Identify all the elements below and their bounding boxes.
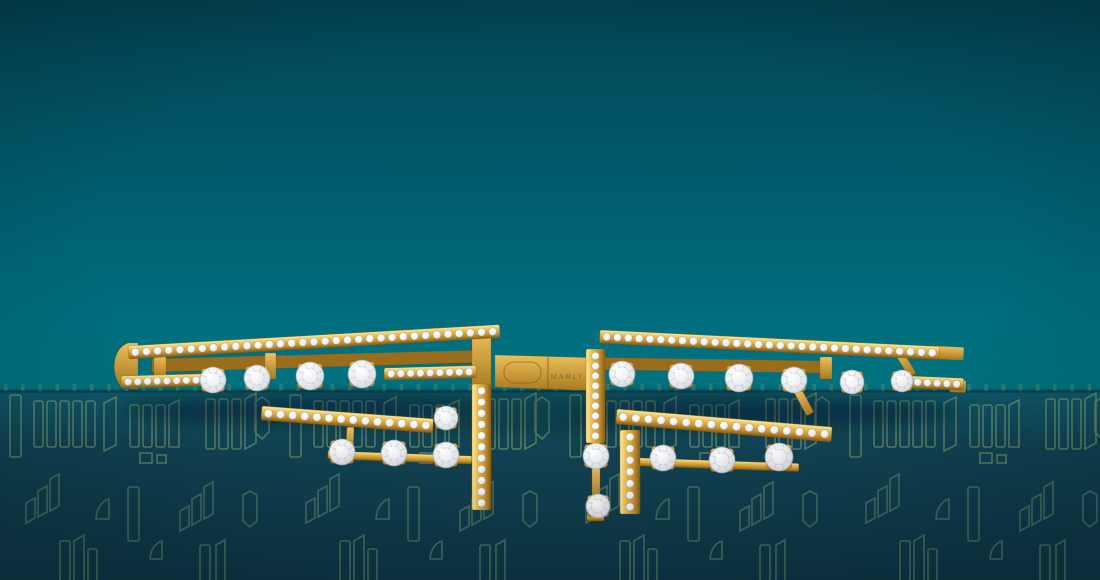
pave-bar — [620, 430, 640, 514]
pave-diamond — [863, 345, 871, 353]
edge-tick — [881, 384, 885, 391]
pave-diamond — [220, 343, 228, 351]
pave-diamond — [142, 347, 150, 355]
pave-diamond — [626, 491, 634, 499]
stone-table — [583, 443, 609, 469]
edge-tick — [228, 384, 232, 391]
edge-tick — [434, 384, 438, 391]
stone-sparkle — [207, 374, 212, 379]
pave-diamond — [733, 339, 741, 347]
pave-diamond — [387, 370, 395, 378]
edge-tick — [279, 384, 283, 391]
pave-diamond — [478, 421, 486, 429]
pave-diamond — [183, 376, 191, 384]
pave-bar — [384, 366, 476, 380]
stone-sparkle — [716, 454, 721, 459]
stone-table — [348, 360, 376, 388]
pave-diamond — [446, 368, 454, 376]
pave-diamond — [744, 340, 752, 348]
edge-tick — [1002, 384, 1006, 391]
pave-diamond — [422, 331, 430, 339]
diamond-stone — [296, 362, 324, 390]
pave-diamond — [165, 346, 173, 354]
edge-tick — [640, 384, 644, 391]
pave-diamond — [668, 336, 676, 344]
pave-diamond — [436, 369, 444, 377]
stone-table — [725, 364, 753, 392]
pave-diamond — [928, 349, 936, 357]
edge-tick — [1070, 384, 1074, 391]
pave-diamond — [592, 352, 600, 360]
pave-diamond — [592, 432, 600, 440]
pave-diamond — [332, 336, 340, 344]
pave-diamond — [933, 379, 941, 387]
pave-diamond — [366, 334, 374, 342]
pave-diamond — [478, 387, 486, 395]
edge-tick — [38, 384, 42, 391]
diamond-stone — [609, 361, 635, 387]
pave-diamond — [635, 334, 643, 342]
stone-sparkle — [251, 372, 256, 377]
stone-table — [709, 447, 735, 473]
edge-tick — [73, 384, 77, 391]
bracelet-shadow — [120, 391, 970, 433]
diamond-stone — [381, 440, 407, 466]
diamond-stone — [329, 439, 355, 465]
edge-tick — [451, 384, 455, 391]
pave-diamond — [798, 342, 806, 350]
edge-tick — [1088, 384, 1092, 391]
diamond-stone — [891, 370, 913, 392]
edge-tick — [709, 384, 713, 391]
pave-diamond — [657, 335, 665, 343]
pave-diamond — [592, 402, 600, 410]
stone-sparkle — [675, 370, 680, 375]
product-photo-stage: MARLI — [0, 0, 1100, 580]
stone-sparkle — [388, 447, 393, 452]
pave-diamond — [478, 443, 486, 451]
edge-tick — [468, 384, 472, 391]
pave-diamond — [410, 332, 418, 340]
edge-tick — [778, 384, 782, 391]
edge-tick — [400, 384, 404, 391]
pave-diamond — [455, 329, 463, 337]
pave-bar — [586, 349, 605, 443]
stone-table — [381, 440, 407, 466]
jewelry-scene: MARLI — [0, 0, 1100, 580]
edge-tick — [812, 384, 816, 391]
pave-diamond — [592, 382, 600, 390]
pave-diamond — [478, 465, 486, 473]
pave-diamond — [602, 333, 610, 341]
pave-diamond — [765, 341, 773, 349]
stone-sparkle — [657, 452, 662, 457]
pave-diamond — [343, 336, 351, 344]
pave-diamond — [820, 343, 828, 351]
pave-diamond — [355, 335, 363, 343]
stone-table — [609, 361, 635, 387]
pave-diamond — [917, 348, 925, 356]
pave-diamond — [134, 378, 142, 386]
pave-diamond — [243, 341, 251, 349]
diamond-stone — [765, 443, 793, 471]
pave-diamond — [626, 468, 634, 476]
pave-diamond — [444, 330, 452, 338]
stone-sparkle — [355, 367, 360, 372]
stone-table — [433, 442, 459, 468]
pave-diamond — [953, 380, 961, 388]
edge-tick — [21, 384, 25, 391]
pave-diamond — [754, 340, 762, 348]
pave-diamond — [153, 347, 161, 355]
gold-part — [820, 357, 832, 379]
edge-tick — [761, 384, 765, 391]
pave-diamond — [455, 368, 463, 376]
pave-bar — [472, 384, 491, 510]
pave-diamond — [943, 380, 951, 388]
pave-diamond — [830, 344, 838, 352]
pave-diamond — [478, 432, 486, 440]
pave-diamond — [232, 342, 240, 350]
diamond-stone — [200, 367, 226, 393]
pave-diamond — [176, 345, 184, 353]
pave-diamond — [192, 376, 200, 384]
pave-diamond — [416, 369, 424, 377]
pave-diamond — [592, 372, 600, 380]
edge-tick — [107, 384, 111, 391]
stone-table — [781, 367, 807, 393]
stone-table — [296, 362, 324, 390]
edge-tick — [56, 384, 60, 391]
diamond-stone — [725, 364, 753, 392]
pave-diamond — [397, 370, 405, 378]
pave-diamond — [489, 327, 497, 335]
pave-diamond — [478, 409, 486, 417]
stone-sparkle — [616, 368, 621, 373]
pave-diamond — [626, 480, 634, 488]
stone-table — [668, 363, 694, 389]
pave-diamond — [466, 329, 474, 337]
pave-diamond — [700, 337, 708, 345]
pave-diamond — [478, 488, 486, 496]
edge-tick — [984, 384, 988, 391]
stone-sparkle — [592, 500, 596, 504]
pave-diamond — [592, 362, 600, 370]
pave-diamond — [624, 334, 632, 342]
pave-bar — [910, 376, 963, 390]
diamond-stone — [781, 367, 807, 393]
pave-diamond — [626, 456, 634, 464]
pave-diamond — [626, 445, 634, 453]
pave-diamond — [153, 377, 161, 385]
pave-diamond — [592, 412, 600, 420]
pave-diamond — [321, 337, 329, 345]
stone-sparkle — [336, 446, 341, 451]
pave-diamond — [299, 338, 307, 346]
pave-diamond — [478, 398, 486, 406]
pave-diamond — [711, 338, 719, 346]
edge-tick — [1019, 384, 1023, 391]
edge-tick — [382, 384, 386, 391]
edge-tick — [658, 384, 662, 391]
stone-sparkle — [897, 376, 901, 380]
edge-tick — [4, 384, 8, 391]
pave-diamond — [399, 332, 407, 340]
edge-tick — [331, 384, 335, 391]
pave-diamond — [478, 477, 486, 485]
pave-diamond — [254, 341, 262, 349]
diamond-stone — [434, 406, 458, 430]
diamond-stone — [709, 447, 735, 473]
pave-diamond — [187, 345, 195, 353]
pave-diamond — [198, 344, 206, 352]
stone-sparkle — [732, 371, 737, 376]
stone-sparkle — [788, 374, 793, 379]
pave-diamond — [477, 328, 485, 336]
pave-diamond — [689, 337, 697, 345]
pave-diamond — [426, 369, 434, 377]
pave-diamond — [144, 377, 152, 385]
edge-tick — [417, 384, 421, 391]
pave-diamond — [163, 377, 171, 385]
pave-diamond — [626, 503, 634, 511]
pave-diamond — [874, 346, 882, 354]
pave-diamond — [924, 379, 932, 387]
stone-table — [891, 370, 913, 392]
edge-tick — [864, 384, 868, 391]
diamond-stone — [840, 370, 864, 394]
pave-diamond — [388, 333, 396, 341]
diamond-stone — [244, 365, 270, 391]
diamond-stone — [583, 443, 609, 469]
stone-table — [244, 365, 270, 391]
edge-tick — [606, 384, 610, 391]
pave-diamond — [433, 330, 441, 338]
pave-diamond — [896, 347, 904, 355]
pave-diamond — [310, 338, 318, 346]
pave-diamond — [592, 422, 600, 430]
pave-diamond — [265, 340, 273, 348]
pave-bar — [121, 374, 203, 388]
pave-diamond — [613, 333, 621, 341]
pave-diamond — [288, 339, 296, 347]
stone-table — [765, 443, 793, 471]
edge-tick — [967, 384, 971, 391]
stone-sparkle — [303, 369, 308, 374]
pave-diamond — [592, 392, 600, 400]
edge-tick — [90, 384, 94, 391]
pave-diamond — [173, 377, 181, 385]
pave-diamond — [478, 454, 486, 462]
stone-sparkle — [440, 412, 444, 416]
pave-bar-base — [121, 374, 203, 388]
stone-table — [840, 370, 864, 394]
diamond-stone — [668, 363, 694, 389]
edge-tick — [1036, 384, 1040, 391]
diamond-stone — [586, 494, 610, 518]
pave-diamond — [809, 343, 817, 351]
pave-diamond — [465, 368, 473, 376]
stone-sparkle — [772, 450, 777, 455]
pave-diamond — [852, 345, 860, 353]
diamond-stone — [650, 445, 676, 471]
pave-diamond — [131, 348, 139, 356]
pave-diamond — [776, 341, 784, 349]
pave-diamond — [276, 339, 284, 347]
stone-table — [434, 406, 458, 430]
pave-diamond — [646, 335, 654, 343]
diamond-stone — [433, 442, 459, 468]
pave-diamond — [787, 342, 795, 350]
stone-sparkle — [590, 450, 595, 455]
pave-diamond — [885, 346, 893, 354]
pave-diamond — [377, 334, 385, 342]
clasp-engraving-text: MARLI — [551, 374, 583, 381]
diamond-stone — [348, 360, 376, 388]
pave-diamond — [722, 338, 730, 346]
stone-table — [650, 445, 676, 471]
edge-tick — [830, 384, 834, 391]
pave-diamond — [906, 348, 914, 356]
pave-diamond — [124, 378, 132, 386]
pave-diamond — [407, 369, 415, 377]
pave-diamond — [478, 499, 486, 507]
stone-table — [329, 439, 355, 465]
pave-diamond — [626, 433, 634, 441]
stone-sparkle — [440, 449, 445, 454]
backdrop-gradient — [0, 0, 1100, 392]
stone-sparkle — [846, 376, 850, 380]
edge-tick — [1053, 384, 1057, 391]
pave-diamond — [914, 378, 922, 386]
stone-table — [200, 367, 226, 393]
pave-diamond — [841, 344, 849, 352]
stone-table — [586, 494, 610, 518]
pave-diamond — [209, 343, 217, 351]
pave-diamond — [678, 336, 686, 344]
